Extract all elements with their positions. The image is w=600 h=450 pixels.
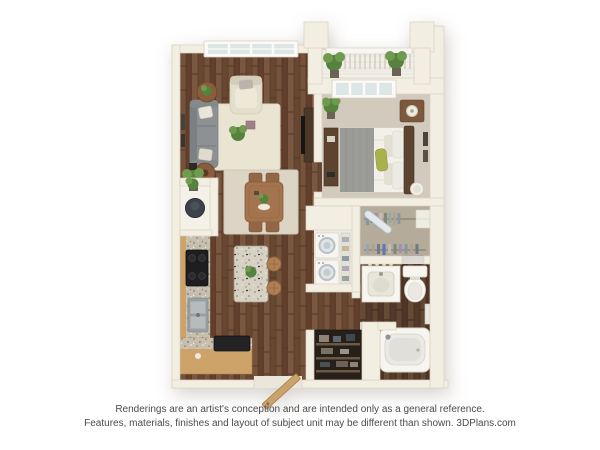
sofa: [190, 100, 218, 168]
kitchen-sink: [188, 298, 208, 332]
tv-console: [301, 108, 314, 162]
disclaimer: Renderings are an artist's conception an…: [0, 403, 600, 430]
hamper-opening: [413, 185, 421, 193]
dresser: [324, 128, 338, 186]
sofa-pillow: [198, 148, 212, 161]
floor-plan-rendering: Renderings are an artist's conception an…: [0, 0, 600, 450]
utility-closet-wall-right: [210, 178, 218, 236]
tub-corner-stub: [378, 322, 396, 330]
gray-duvet: [340, 128, 374, 192]
rug-decor-box: [246, 121, 255, 129]
laundry-shelf: [341, 233, 350, 285]
bed: [340, 126, 414, 194]
water-heater-top: [191, 202, 200, 211]
dining-chair: [266, 221, 279, 232]
linen-shelf: [316, 370, 360, 373]
utility-closet-wall-bottom: [180, 230, 212, 236]
kitchen-island: [234, 246, 268, 302]
balcony-door: [332, 80, 396, 98]
kitchen-counter-lower: [180, 336, 252, 374]
disclaimer-line-1: Renderings are an artist's conception an…: [0, 403, 600, 417]
kitchen-counter: [180, 236, 210, 338]
faucet: [379, 272, 383, 276]
dryer: [315, 260, 339, 285]
linen-shelf: [316, 357, 360, 360]
accent-pillow: [375, 148, 388, 171]
floor-plan-canvas: [0, 0, 600, 450]
living-room-window: [204, 41, 298, 57]
exterior-wall-left: [172, 45, 180, 388]
closet-bath-divider: [360, 256, 402, 264]
balcony-right-wall: [414, 48, 430, 84]
stove: [186, 250, 208, 286]
armchair: [230, 76, 262, 114]
bedroom-doorway-floor: [314, 160, 322, 194]
bathroom-door-stub: [352, 292, 360, 298]
linen-closet: [314, 330, 362, 380]
closet-bath-divider-stub: [424, 256, 430, 264]
bar-stool: [267, 257, 281, 271]
bedroom-bottom-wall: [314, 198, 444, 206]
toilet: [403, 266, 427, 302]
dining-table: [245, 182, 283, 222]
tv: [301, 116, 305, 154]
laundry-closet-divider: [352, 206, 360, 292]
sofa-pillow: [198, 106, 213, 119]
countertop-appliance: [214, 336, 250, 351]
balcony-pillar-right: [410, 22, 434, 52]
pillow: [392, 131, 404, 158]
toilet-tank: [403, 266, 427, 277]
linen-shelf: [316, 343, 360, 346]
tub-faucet: [385, 334, 390, 339]
side-table: [197, 82, 217, 102]
pillow: [392, 162, 404, 189]
balcony-left-wall: [308, 44, 322, 84]
bathtub: [380, 328, 430, 372]
washer: [315, 233, 339, 258]
disclaimer-line-2: Features, materials, finishes and layout…: [0, 417, 600, 431]
linen-right-wall: [362, 322, 380, 380]
balcony-pillar-left: [304, 22, 328, 48]
bar-stool: [267, 281, 281, 295]
armchair-pillow: [239, 79, 254, 89]
tub-drain: [416, 348, 419, 351]
exterior-wall-bottom: [172, 380, 254, 388]
towel-rack: [425, 304, 430, 324]
exterior-wall-bottom: [302, 380, 448, 388]
linen-left-wall: [306, 330, 314, 380]
dining-chair: [249, 221, 262, 232]
nightstand: [400, 100, 424, 122]
vanity: [362, 266, 400, 302]
faucet: [196, 313, 200, 317]
